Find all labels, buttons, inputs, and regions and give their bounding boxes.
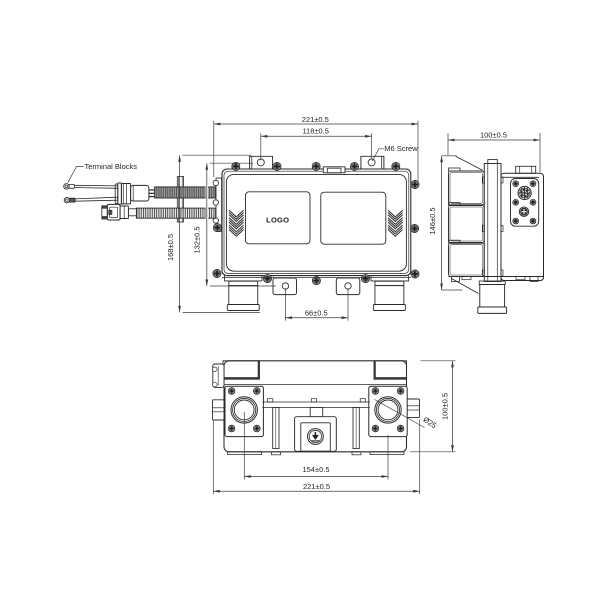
svg-text:LOGO: LOGO	[266, 216, 289, 225]
svg-text:118±0.5: 118±0.5	[302, 126, 329, 135]
svg-text:154±0.5: 154±0.5	[302, 465, 329, 474]
svg-text:221±0.5: 221±0.5	[302, 115, 329, 124]
svg-text:Terminal Blocks: Terminal Blocks	[85, 162, 138, 171]
svg-text:100±0.5: 100±0.5	[480, 131, 507, 140]
svg-text:146±0.5: 146±0.5	[428, 207, 437, 234]
svg-text:M6 Screw: M6 Screw	[384, 144, 418, 153]
svg-text:66±0.5: 66±0.5	[305, 309, 328, 318]
svg-text:221±0.5: 221±0.5	[303, 482, 330, 491]
svg-text:168±0.5: 168±0.5	[166, 234, 175, 261]
svg-text:132±0.5: 132±0.5	[193, 226, 202, 253]
svg-text:100±0.5: 100±0.5	[440, 393, 449, 420]
